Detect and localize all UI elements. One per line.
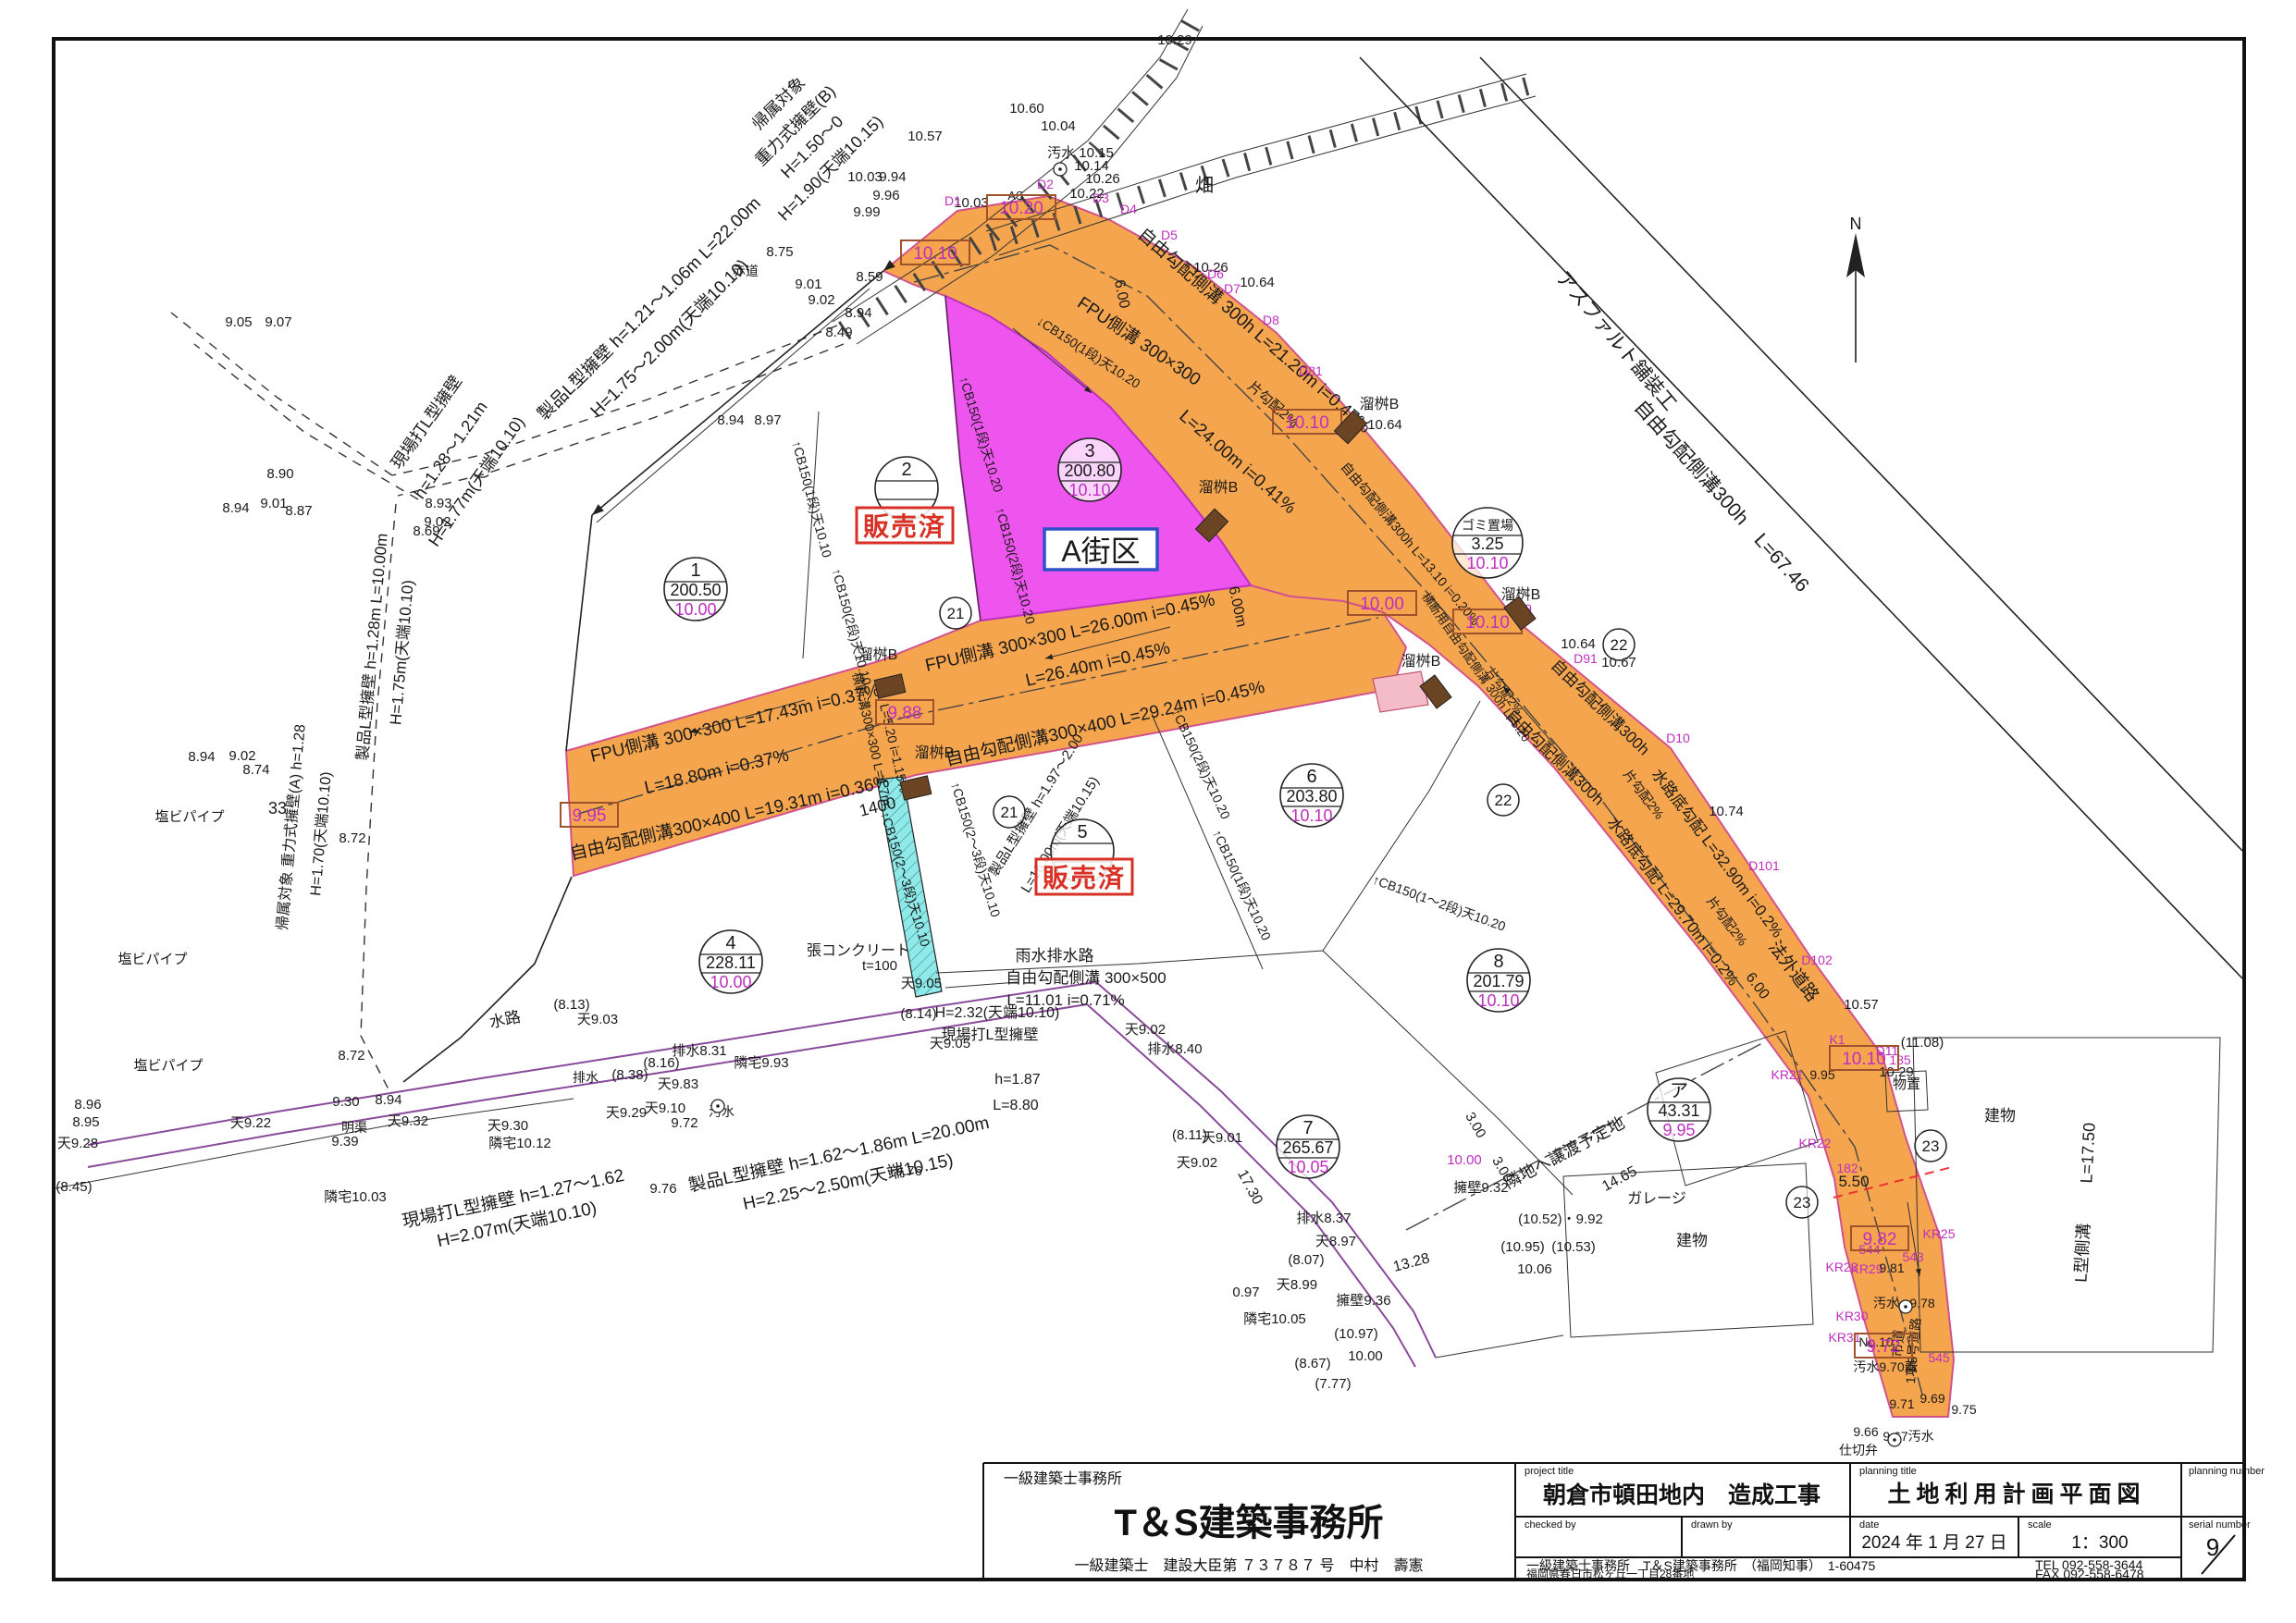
- project-title: 朝倉市頓田地内 造成工事: [1543, 1482, 1821, 1508]
- map-label: 10.04: [1041, 118, 1076, 134]
- map-label: 185: [1889, 1052, 1911, 1067]
- map-label: 明渠: [341, 1120, 367, 1135]
- map-label: 10.64: [1240, 275, 1275, 290]
- map-label: ↑CB150(1段)天10.20: [1210, 828, 1275, 943]
- office-type: 一級建築士事務所: [1004, 1470, 1122, 1487]
- map-label: H=2.32(天端10.10): [935, 1004, 1060, 1021]
- design-elevation-value: 9.88: [888, 704, 922, 723]
- map-label: 9.30: [332, 1094, 359, 1110]
- scale-value: 1：300: [2071, 1533, 2128, 1553]
- design-elevation-value: 9.82: [1863, 1230, 1897, 1249]
- map-label: 天9.01: [1202, 1130, 1242, 1146]
- architect-line: 一級建築士 建設大臣第 ７３７８７ 号 中村 壽憲: [1075, 1556, 1424, 1574]
- map-label: 8.94: [222, 500, 249, 516]
- map-label: 天9.03: [577, 1012, 618, 1027]
- map-label: 自由勾配側溝300h L=67.46: [1630, 397, 1813, 596]
- map-label: 塩ビパイプ: [133, 1058, 203, 1074]
- map-label: 8.72: [339, 830, 365, 846]
- serial-number-header: serial number: [2189, 1519, 2251, 1531]
- map-label: 10.03: [847, 169, 883, 185]
- boundary-point-number: 22: [1495, 792, 1512, 809]
- north-arrow: [1846, 233, 1865, 363]
- map-label: 9.71: [1889, 1396, 1914, 1411]
- map-label: 8.59: [856, 269, 883, 285]
- map-label: (8.67): [1294, 1356, 1330, 1371]
- map-label: D3: [1092, 191, 1109, 205]
- parcel-number: 1: [690, 560, 700, 581]
- parcel-area: 201.79: [1473, 972, 1524, 990]
- parcel-area: 203.80: [1286, 787, 1337, 805]
- map-label: 畑: [1195, 175, 1214, 196]
- map-label: 9.01: [260, 496, 287, 511]
- map-label: 排水8.31: [672, 1043, 726, 1059]
- map-label: 9.69: [1920, 1391, 1944, 1406]
- map-label: K1: [1829, 1032, 1845, 1047]
- map-label: 帰属対象 重力式擁壁(A) h=1.28: [273, 723, 308, 931]
- map-label: 隣宅9.93: [734, 1055, 788, 1071]
- map-label: 8.72: [338, 1048, 364, 1064]
- map-label: L=8.80: [993, 1098, 1038, 1113]
- map-label: 9.07: [265, 314, 291, 330]
- map-label: 9.81: [1879, 1260, 1904, 1275]
- map-label: (8.07): [1288, 1252, 1324, 1268]
- sold-stamp-label: 販売済: [863, 512, 946, 541]
- map-label: 擁壁9.36: [1336, 1293, 1390, 1309]
- map-label: D4: [1120, 202, 1137, 216]
- map-label: 10.64: [1561, 636, 1596, 652]
- map-label: 隣宅10.05: [1243, 1311, 1306, 1327]
- parcel-area: 265.67: [1282, 1138, 1333, 1157]
- parcel-elevation: 10.10: [1477, 991, 1519, 1010]
- map-label: 天9.02: [1125, 1022, 1166, 1038]
- planning-title-header: planning title: [1859, 1466, 1917, 1477]
- map-label: 182: [1836, 1161, 1858, 1175]
- map-label: 塩ビパイプ: [154, 809, 224, 825]
- map-label: 張コンクリート: [807, 942, 910, 959]
- map-label: 33: [268, 799, 287, 818]
- map-label: L型側溝: [2071, 1223, 2092, 1283]
- map-label: 排水8.40: [1147, 1041, 1202, 1057]
- map-label: (7.77): [1315, 1376, 1351, 1392]
- map-label: D101: [1748, 858, 1780, 873]
- map-label: 10.74: [1709, 804, 1744, 819]
- building-outline-2: [1913, 1038, 2220, 1352]
- map-label: 隣宅10.03: [324, 1189, 387, 1205]
- map-label: 8.94: [375, 1092, 401, 1108]
- map-label: 8.69: [413, 523, 439, 539]
- map-label: L=17.50: [2077, 1122, 2098, 1184]
- map-label: 天8.97: [1315, 1234, 1356, 1249]
- map-label: 10.57: [907, 129, 943, 144]
- manhole-center-dot: [1893, 1438, 1896, 1442]
- parcel-area: 43.31: [1658, 1101, 1699, 1120]
- map-label: 9.78: [1909, 1296, 1934, 1310]
- map-label: (8.45): [56, 1179, 92, 1195]
- parcel-elevation: 10.05: [1287, 1158, 1328, 1176]
- date-value: 2024 年 1 月 27 日: [1861, 1532, 2006, 1553]
- map-label: 13.28: [1391, 1250, 1431, 1275]
- map-label: 建物: [1984, 1107, 2016, 1125]
- map-label: 天9.10: [645, 1100, 685, 1116]
- map-label: (10.95): [1500, 1239, 1545, 1255]
- map-label: 建物: [1676, 1232, 1708, 1249]
- map-label: 9.76: [649, 1181, 676, 1197]
- design-elevation-value: 10.10: [1285, 413, 1329, 433]
- parcel-number: 5: [1077, 822, 1087, 842]
- map-label: 天9.30: [488, 1118, 528, 1134]
- parcel-area: 228.11: [706, 953, 756, 972]
- map-label: 自由勾配側溝 300×500: [1006, 969, 1166, 987]
- map-label: (10.97): [1334, 1326, 1378, 1342]
- design-elevation-value: 10.20: [999, 199, 1043, 218]
- design-elevation-value: 9.72: [1867, 1337, 1901, 1357]
- map-label: KR21: [1771, 1067, 1803, 1082]
- parcel-elevation: 10.00: [674, 600, 716, 619]
- boundary-point-number: 23: [1794, 1194, 1811, 1211]
- map-label: 10.60: [1009, 101, 1044, 117]
- map-label: 排水8.37: [1296, 1211, 1351, 1226]
- map-label: 排水: [573, 1070, 599, 1085]
- map-label: アスファルト舗装工: [1551, 267, 1680, 415]
- design-elevation-value: 10.10: [1842, 1050, 1886, 1069]
- map-label: D102: [1801, 953, 1833, 967]
- map-label: 擁壁9.32: [1453, 1180, 1508, 1196]
- map-label: 天9.29: [606, 1105, 647, 1121]
- map-label: D7: [1224, 281, 1241, 296]
- map-label: 天9.28: [57, 1136, 98, 1151]
- checked-by-header: checked by: [1524, 1519, 1576, 1531]
- map-label: 8.96: [74, 1097, 101, 1113]
- map-label: 3.00: [1462, 1110, 1488, 1141]
- map-label: 10.00: [1348, 1348, 1383, 1364]
- map-label: 9.99: [853, 204, 880, 220]
- parcel-number: ア: [1670, 1081, 1688, 1101]
- map-label: D2: [1037, 177, 1054, 191]
- map-label: 9.72: [671, 1115, 697, 1131]
- map-label: 10.29: [1157, 32, 1192, 48]
- map-label: 溜桝B: [915, 744, 955, 761]
- manhole-center-dot: [1904, 1305, 1907, 1309]
- manhole-center-dot: [1058, 167, 1062, 171]
- map-label: 溜桝B: [1360, 396, 1400, 412]
- map-label: 9.05: [225, 314, 252, 330]
- map-label: H=1.70(天端10.10): [307, 771, 335, 897]
- parcel-number: 4: [725, 933, 735, 953]
- parcel-number: 2: [901, 460, 911, 480]
- design-elevation-value: 10.00: [1360, 595, 1404, 614]
- design-elevation-value: 10.10: [1465, 613, 1510, 633]
- map-label: 9.01: [795, 277, 821, 292]
- map-label: 9.94: [879, 169, 906, 185]
- planning-number-header: planning number: [2189, 1466, 2265, 1477]
- parcel-area: 200.50: [670, 581, 721, 599]
- map-label: (8.14): [900, 1006, 936, 1022]
- map-label: 9.02: [808, 292, 834, 308]
- boundary-point-number: 23: [1922, 1137, 1940, 1155]
- map-label: 543: [1902, 1249, 1924, 1264]
- parcel-elevation: 10.10: [1068, 481, 1110, 499]
- map-label: N: [1850, 215, 1862, 233]
- map-label: 溜桝B: [858, 646, 898, 663]
- map-label: (8.16): [643, 1055, 679, 1071]
- map-label: ↑CB150(2～3段)天10.10: [948, 781, 1004, 919]
- map-label: 10.00: [1447, 1152, 1482, 1168]
- sold-stamp-label: 販売済: [1043, 864, 1126, 892]
- map-label: 545: [1928, 1350, 1950, 1365]
- map-label: 10.26: [1085, 171, 1120, 187]
- boundary-point-number: 22: [1611, 636, 1628, 654]
- map-label: D81: [1299, 363, 1323, 378]
- map-label: (10.53): [1551, 1239, 1596, 1255]
- map-label: 製品L型擁壁 h=1.28m L=10.00m: [353, 533, 390, 761]
- map-label: 8.93: [425, 496, 451, 511]
- planning-title: 土地利用計画平面図: [1887, 1481, 2145, 1507]
- parcel-elevation: 10.10: [1466, 554, 1508, 572]
- map-label: 塩ビパイプ: [117, 952, 187, 967]
- map-label: 隣宅10.12: [488, 1136, 551, 1151]
- map-label: 天9.02: [1177, 1155, 1217, 1171]
- site-plan-svg: 10.2910.5710.6010.04汚水 10.1510.1410.2610…: [0, 0, 2296, 1623]
- map-label: 汚水: [1873, 1296, 1899, 1310]
- map-label: 14.65: [1599, 1163, 1639, 1195]
- parcel-number: ゴミ置場: [1462, 518, 1513, 533]
- map-label: 溜桝B: [1401, 653, 1441, 670]
- project-title-header: project title: [1524, 1466, 1574, 1477]
- map-label: 10.06: [1517, 1261, 1552, 1277]
- map-label: D10: [1666, 731, 1690, 745]
- map-label: 8.49: [825, 325, 852, 340]
- drawing-sheet: 10.2910.5710.6010.04汚水 10.1510.1410.2610…: [0, 0, 2296, 1623]
- parcel-area: 3.25: [1471, 535, 1503, 553]
- map-label: 8.90: [266, 466, 293, 482]
- parcel-elevation: 10.00: [710, 973, 751, 991]
- map-label: 天9.83: [658, 1076, 698, 1092]
- map-label: 10.57: [1844, 997, 1879, 1013]
- map-label: D91: [1574, 651, 1598, 666]
- parcel-elevation: 9.95: [1662, 1121, 1695, 1139]
- fax-line: FAX 092-558-6478: [2035, 1567, 2144, 1581]
- building-outline-1: [1563, 1163, 1813, 1337]
- map-label: KR30: [1835, 1309, 1868, 1323]
- boundary-point-number: 21: [1001, 804, 1018, 821]
- map-label: D1: [944, 193, 961, 208]
- map-label: 溜桝B: [1199, 479, 1239, 496]
- map-label: KR31: [1828, 1330, 1860, 1345]
- map-label: 8.74: [242, 762, 269, 778]
- design-elevation-value: 10.10: [913, 244, 957, 264]
- map-label: 現場打L型擁壁: [942, 1026, 1039, 1043]
- address-line: 福岡県春日市松ヶ丘一丁目28番地: [1526, 1567, 1694, 1580]
- map-label: ガレージ: [1627, 1190, 1686, 1207]
- map-label: 8.75: [766, 244, 793, 260]
- map-label: 0.97: [1232, 1285, 1259, 1300]
- parcel-number: 8: [1493, 952, 1503, 972]
- district-label: A街区: [1061, 535, 1140, 568]
- map-label: KR25: [1922, 1226, 1955, 1241]
- map-label: 8.94: [845, 305, 871, 321]
- map-label: (10.52)・9.92: [1518, 1211, 1603, 1227]
- map-label: 8.95: [72, 1114, 99, 1130]
- serial-number-value: 9: [2206, 1533, 2219, 1561]
- map-label: 8.87: [285, 503, 312, 519]
- map-label: D8: [1263, 313, 1279, 327]
- map-label: h=1.87: [994, 1072, 1040, 1088]
- map-label: 水路: [488, 1008, 522, 1032]
- map-label: 8.97: [754, 412, 781, 428]
- title-block: project title planning title planning nu…: [983, 1463, 2265, 1581]
- map-label: (8.13): [553, 997, 589, 1013]
- date-header: date: [1859, 1519, 1879, 1531]
- parcel-number: 7: [1302, 1118, 1313, 1138]
- design-elevation-value: 9.95: [573, 806, 607, 826]
- office-name: T＆S建築事務所: [1114, 1503, 1383, 1543]
- map-label: 天8.99: [1277, 1277, 1317, 1293]
- boundary-point-number: 21: [947, 605, 965, 622]
- map-label: 10.64: [1367, 417, 1402, 433]
- map-label: t=100: [862, 958, 897, 974]
- drawn-by-header: drawn by: [1691, 1519, 1733, 1531]
- map-label: D5: [1161, 227, 1178, 242]
- map-label: KR22: [1798, 1136, 1831, 1150]
- map-label: 8.94: [717, 412, 744, 428]
- map-label: 製品L型擁壁 h=1.21～1.06m L=22.00m: [534, 193, 765, 424]
- map-label: 天9.32: [388, 1113, 428, 1129]
- map-label: 9.75: [1951, 1402, 1976, 1417]
- map-label: 8.94: [188, 749, 215, 765]
- map-label: ↑CB150(1段)天10.10: [789, 439, 834, 559]
- map-label: (11.08): [1901, 1035, 1944, 1051]
- parcel-elevation: 10.10: [1290, 806, 1332, 825]
- map-label: 雨水排水路: [1016, 947, 1094, 965]
- parcel-number: 6: [1306, 767, 1316, 787]
- map-label: H=1.75m(天端10.10): [387, 579, 417, 725]
- pink-structure: [1373, 671, 1428, 712]
- map-label: D6: [1207, 266, 1224, 281]
- parcel-area: 200.80: [1064, 461, 1115, 480]
- scale-header: scale: [2028, 1519, 2052, 1531]
- map-label: 9.39: [331, 1134, 358, 1150]
- manhole-center-dot: [716, 1104, 720, 1108]
- map-label: 天9.05: [901, 976, 942, 991]
- map-label: (8.38): [611, 1067, 648, 1083]
- map-label: 天9.22: [230, 1115, 271, 1131]
- map-label: ↑CB150(1～2段)天10.20: [1371, 872, 1508, 934]
- map-label: 9.66: [1853, 1424, 1878, 1439]
- map-label: 仕切弁: [1839, 1443, 1878, 1457]
- map-label: 9.96: [872, 188, 899, 203]
- parcel-number: 3: [1084, 441, 1094, 461]
- map-label: 17.30: [1234, 1167, 1265, 1207]
